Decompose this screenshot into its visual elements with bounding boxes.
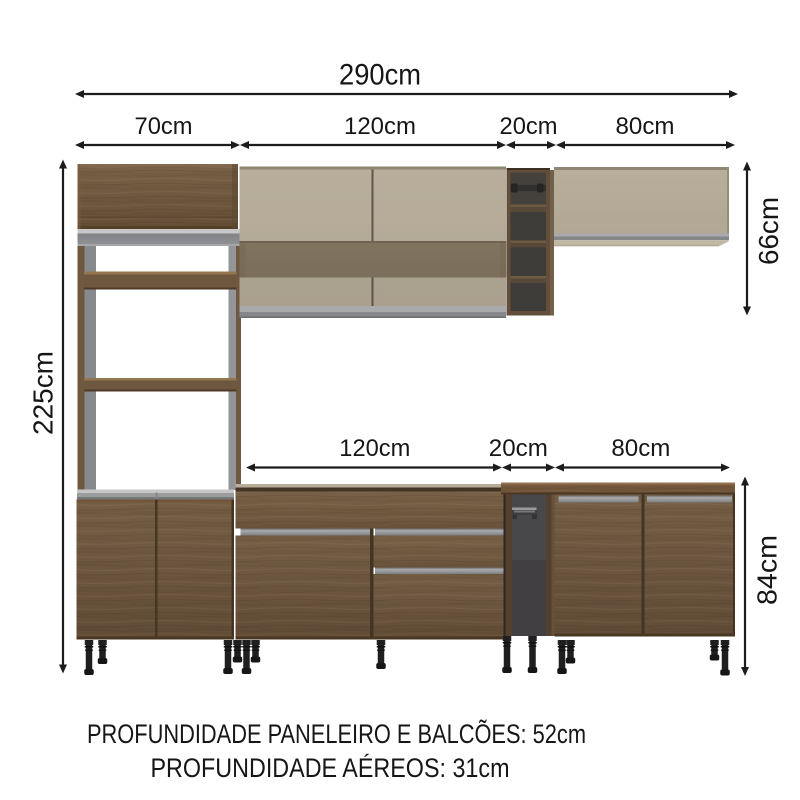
svg-text:84cm: 84cm: [752, 535, 783, 605]
svg-text:PROFUNDIDADE AÉREOS: 31cm: PROFUNDIDADE AÉREOS: 31cm: [151, 753, 510, 783]
svg-text:PROFUNDIDADE PANELEIRO E BALCÕ: PROFUNDIDADE PANELEIRO E BALCÕES: 52cm: [87, 718, 586, 749]
svg-text:120cm: 120cm: [339, 435, 410, 462]
svg-text:225cm: 225cm: [28, 351, 59, 435]
svg-text:20cm: 20cm: [500, 113, 558, 140]
svg-text:20cm: 20cm: [489, 435, 548, 462]
svg-text:290cm: 290cm: [339, 59, 421, 92]
svg-text:120cm: 120cm: [344, 113, 416, 140]
svg-text:80cm: 80cm: [611, 435, 670, 462]
svg-text:80cm: 80cm: [616, 113, 675, 140]
svg-text:66cm: 66cm: [753, 197, 784, 265]
svg-text:70cm: 70cm: [135, 113, 193, 140]
